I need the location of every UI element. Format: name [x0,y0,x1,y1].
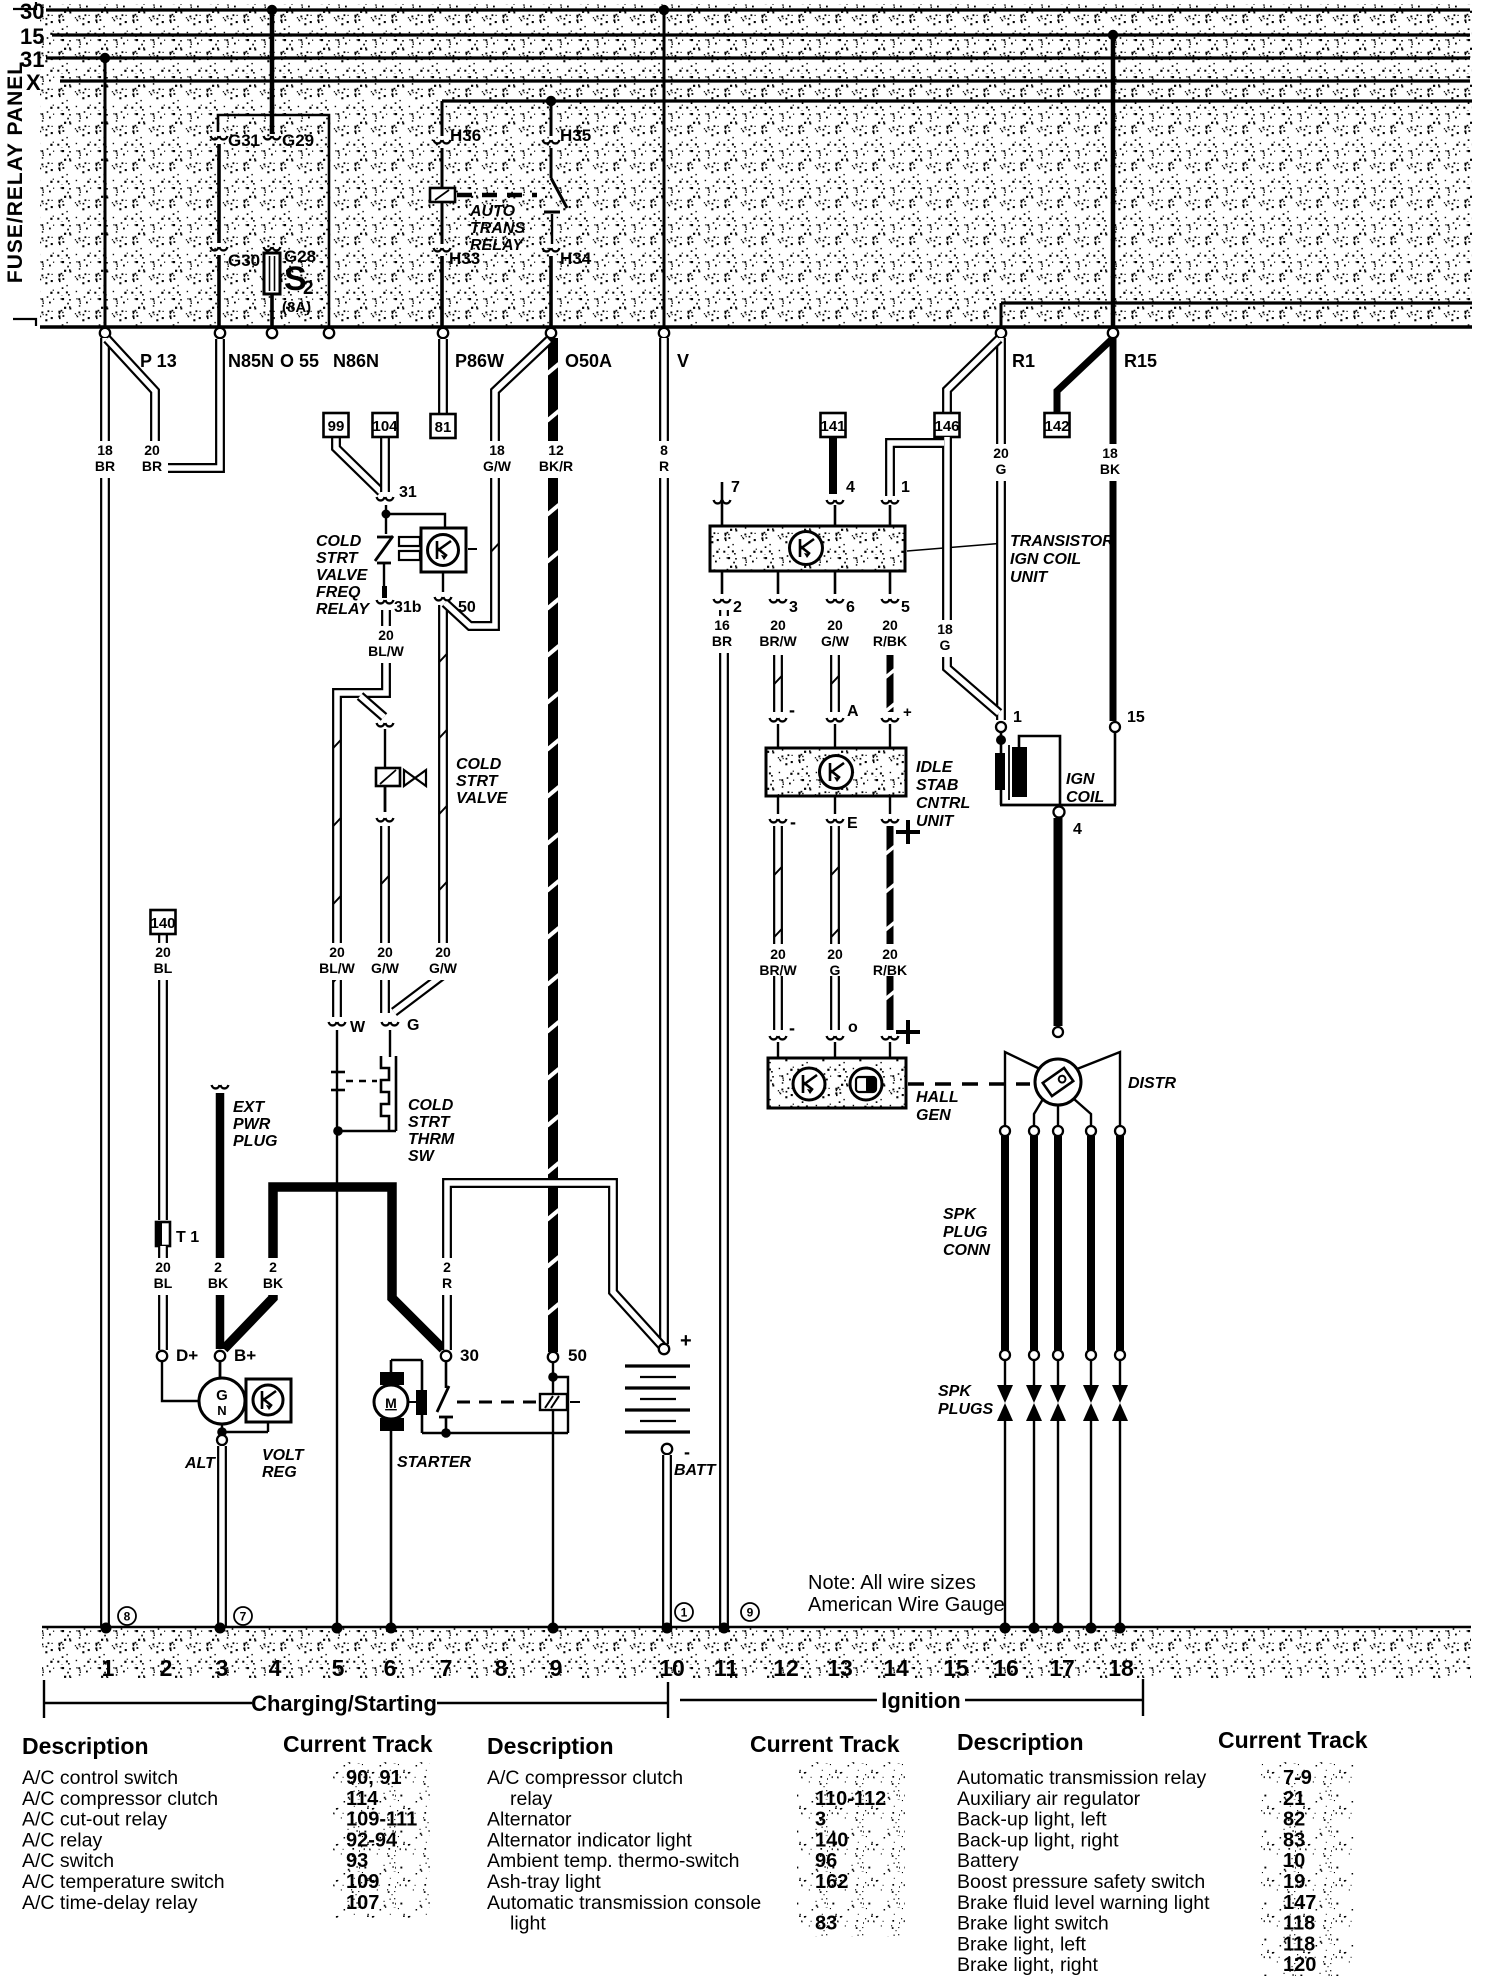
svg-text:BK: BK [263,1275,283,1291]
svg-text:A/C switch: A/C switch [22,1850,114,1872]
svg-text:A/C cut-out relay: A/C cut-out relay [22,1809,167,1831]
svg-text:31: 31 [20,47,44,72]
svg-text:Description: Description [487,1733,614,1759]
svg-text:COLD: COLD [408,1097,454,1114]
svg-text:GEN: GEN [916,1107,951,1124]
svg-text:+: + [680,1330,692,1352]
svg-text:BATT: BATT [674,1462,717,1479]
svg-text:20: 20 [144,442,160,458]
svg-text:2: 2 [733,599,742,616]
svg-text:7: 7 [731,479,740,496]
svg-text:114: 114 [346,1788,379,1810]
svg-text:99: 99 [328,418,345,435]
svg-text:109-111: 109-111 [346,1809,417,1831]
svg-text:Ignition: Ignition [881,1688,960,1713]
svg-text:R1: R1 [1012,351,1035,371]
svg-text:7: 7 [440,1655,453,1681]
svg-text:A/C time-delay relay: A/C time-delay relay [22,1892,198,1914]
svg-text:5: 5 [332,1655,345,1681]
svg-text:relay: relay [510,1788,553,1810]
svg-text:15: 15 [943,1655,969,1681]
svg-text:VALVE: VALVE [456,790,509,807]
svg-text:Ambient temp. thermo-switch: Ambient temp. thermo-switch [487,1850,740,1872]
svg-text:20: 20 [882,946,898,962]
svg-text:light: light [510,1913,546,1935]
svg-text:X: X [26,70,41,95]
svg-text:STRT: STRT [316,550,359,567]
svg-text:1: 1 [681,1606,688,1620]
svg-text:G31: G31 [228,131,260,150]
svg-text:162: 162 [815,1871,848,1893]
svg-text:STRT: STRT [408,1114,451,1131]
svg-text:STRT: STRT [456,773,499,790]
svg-text:3: 3 [789,599,798,616]
svg-text:PWR: PWR [233,1116,271,1133]
svg-text:N86N: N86N [333,351,379,371]
svg-text:COIL: COIL [1066,789,1104,806]
svg-text:A/C compressor clutch: A/C compressor clutch [487,1767,683,1789]
svg-text:30: 30 [20,0,44,24]
svg-text:6: 6 [846,599,855,616]
svg-text:93: 93 [346,1850,368,1872]
svg-text:BL/W: BL/W [319,960,356,976]
svg-text:G: G [830,962,841,978]
svg-text:13: 13 [827,1655,853,1681]
svg-text:P 13: P 13 [140,351,177,371]
svg-text:V: V [677,351,689,371]
svg-text:G: G [216,1387,228,1404]
svg-text:G/W: G/W [429,960,458,976]
svg-text:Alternator indicator light: Alternator indicator light [487,1829,692,1851]
svg-text:COLD: COLD [456,756,502,773]
svg-text:Description: Description [957,1729,1084,1755]
svg-text:Note: All wire sizes: Note: All wire sizes [808,1572,976,1594]
svg-text:4: 4 [846,479,855,496]
svg-text:18: 18 [937,621,953,637]
svg-text:G/W: G/W [371,960,400,976]
svg-text:PLUG: PLUG [233,1133,277,1150]
svg-text:A/C relay: A/C relay [22,1829,102,1851]
svg-text:6: 6 [384,1655,397,1681]
svg-text:G29: G29 [282,131,314,150]
svg-text:CONN: CONN [943,1242,991,1259]
svg-text:1: 1 [1013,709,1022,726]
svg-text:FUSE/RELAY PANEL: FUSE/RELAY PANEL [4,61,27,283]
svg-text:16: 16 [993,1655,1019,1681]
svg-text:18: 18 [1108,1655,1134,1681]
svg-text:R15: R15 [1124,351,1157,371]
svg-text:G30: G30 [228,251,260,270]
svg-text:109: 109 [346,1871,379,1893]
svg-text:FREQ: FREQ [316,584,361,601]
svg-text:SPK: SPK [943,1206,977,1223]
svg-text:A/C control switch: A/C control switch [22,1767,178,1789]
svg-text:146: 146 [934,418,959,435]
svg-text:R: R [659,458,669,474]
svg-text:American Wire Gauge: American Wire Gauge [808,1594,1005,1616]
svg-text:12: 12 [773,1655,799,1681]
svg-text:Brake light, right: Brake light, right [957,1954,1098,1976]
svg-text:A: A [847,703,859,720]
svg-text:(8A): (8A) [282,299,311,316]
svg-text:T 1: T 1 [176,1229,199,1246]
svg-text:G: G [407,1017,419,1034]
svg-text:A/C compressor clutch: A/C compressor clutch [22,1788,218,1810]
svg-text:7: 7 [240,1610,247,1624]
svg-text:W: W [350,1019,366,1036]
svg-text:SPK: SPK [938,1383,972,1400]
svg-text:Current Track: Current Track [1218,1727,1368,1753]
svg-text:140: 140 [150,915,175,932]
svg-text:20: 20 [155,944,171,960]
svg-text:8: 8 [495,1655,508,1681]
svg-text:CNTRL: CNTRL [916,795,970,812]
svg-text:G/W: G/W [483,458,512,474]
svg-text:BR: BR [142,458,162,474]
svg-text:140: 140 [815,1829,848,1851]
svg-text:BK/R: BK/R [539,458,573,474]
svg-text:16: 16 [714,617,730,633]
svg-text:N: N [217,1403,226,1418]
svg-text:20: 20 [827,946,843,962]
svg-text:o: o [848,1019,858,1036]
svg-text:110-112: 110-112 [815,1788,886,1810]
svg-text:142: 142 [1044,418,1069,435]
svg-text:8: 8 [124,1610,131,1624]
svg-text:82: 82 [1283,1809,1305,1831]
svg-text:BR/W: BR/W [759,962,797,978]
svg-text:83: 83 [1283,1829,1305,1851]
svg-text:20: 20 [993,445,1009,461]
svg-text:Brake light switch: Brake light switch [957,1913,1109,1935]
svg-text:PLUG: PLUG [943,1224,987,1241]
svg-text:14: 14 [883,1655,909,1681]
svg-text:Brake light, left: Brake light, left [957,1933,1087,1955]
svg-text:9: 9 [747,1606,754,1620]
svg-text:-: - [789,1018,795,1038]
svg-text:20: 20 [882,617,898,633]
svg-text:18: 18 [1102,445,1118,461]
svg-text:11: 11 [714,1655,739,1681]
svg-text:RELAY: RELAY [316,601,370,618]
svg-text:Back-up light, left: Back-up light, left [957,1809,1107,1831]
svg-text:UNIT: UNIT [916,813,955,830]
svg-text:81: 81 [435,419,452,436]
svg-text:8: 8 [660,442,668,458]
svg-text:G: G [996,461,1007,477]
svg-text:H36: H36 [450,126,481,145]
svg-text:20: 20 [377,944,393,960]
svg-text:Charging/Starting: Charging/Starting [251,1691,437,1716]
svg-text:G/W: G/W [821,633,850,649]
svg-text:IDLE: IDLE [916,759,954,776]
svg-text:STAB: STAB [916,777,958,794]
svg-text:Description: Description [22,1733,149,1759]
svg-text:90, 91: 90, 91 [346,1767,402,1789]
svg-text:15: 15 [1127,709,1145,726]
svg-text:Alternator: Alternator [487,1809,572,1831]
svg-text:G: G [940,637,951,653]
svg-text:RELAY: RELAY [470,237,524,254]
svg-text:17: 17 [1049,1655,1075,1681]
svg-text:Back-up light, right: Back-up light, right [957,1829,1119,1851]
svg-text:118: 118 [1283,1933,1315,1955]
svg-text:18: 18 [489,442,505,458]
svg-text:20: 20 [827,617,843,633]
svg-text:BL/W: BL/W [368,643,405,659]
svg-text:Automatic transmission console: Automatic transmission console [487,1892,761,1914]
svg-text:-: - [790,812,796,832]
svg-text:H35: H35 [560,126,591,145]
svg-text:R/BK: R/BK [873,962,907,978]
svg-text:BK: BK [208,1275,228,1291]
svg-text:1: 1 [901,479,910,496]
svg-text:THRM: THRM [408,1131,455,1148]
svg-text:3: 3 [216,1655,229,1681]
svg-text:E: E [847,815,858,832]
svg-text:IGN: IGN [1066,771,1095,788]
svg-text:2: 2 [214,1259,222,1275]
svg-text:UNIT: UNIT [1010,569,1049,586]
svg-text:STARTER: STARTER [397,1454,472,1471]
svg-text:21: 21 [1283,1788,1305,1810]
svg-text:HALL: HALL [916,1089,959,1106]
svg-text:2: 2 [303,278,314,299]
svg-text:Battery: Battery [957,1850,1019,1872]
svg-text:141: 141 [820,418,845,435]
svg-text:2: 2 [443,1259,451,1275]
svg-text:20: 20 [378,627,394,643]
svg-text:50: 50 [568,1346,587,1365]
svg-text:BR/W: BR/W [759,633,797,649]
svg-text:SW: SW [408,1148,436,1165]
svg-text:10: 10 [1283,1850,1305,1872]
svg-text:O 55: O 55 [280,351,319,371]
svg-text:18: 18 [97,442,113,458]
svg-text:7-9: 7-9 [1283,1767,1312,1789]
svg-text:+: + [903,704,912,721]
svg-text:118: 118 [1283,1913,1315,1935]
svg-text:BR: BR [712,633,732,649]
svg-text:H34: H34 [560,249,592,268]
svg-text:Brake fluid level warning ligh: Brake fluid level warning light [957,1892,1210,1914]
svg-text:1: 1 [102,1655,115,1681]
svg-text:-: - [789,700,795,720]
svg-text:REG: REG [262,1464,297,1481]
svg-text:147: 147 [1283,1892,1316,1914]
svg-text:BL: BL [154,1275,173,1291]
svg-text:VOLT: VOLT [262,1447,305,1464]
svg-text:IGN COIL: IGN COIL [1010,551,1081,568]
svg-text:BR: BR [95,458,115,474]
svg-text:104: 104 [372,418,398,435]
svg-text:Current Track: Current Track [750,1731,900,1757]
svg-text:12: 12 [548,442,564,458]
svg-text:Automatic transmission relay: Automatic transmission relay [957,1767,1207,1789]
svg-text:2: 2 [160,1655,173,1681]
svg-text:COLD: COLD [316,533,362,550]
svg-text:20: 20 [435,944,451,960]
svg-text:Ash-tray light: Ash-tray light [487,1871,601,1893]
svg-text:9: 9 [550,1655,563,1681]
svg-text:VALVE: VALVE [316,567,369,584]
svg-text:D+: D+ [176,1346,198,1365]
svg-text:EXT: EXT [233,1099,265,1116]
svg-text:TRANSISTOR: TRANSISTOR [1010,533,1114,550]
svg-text:4: 4 [1073,821,1082,838]
svg-text:31b: 31b [394,599,422,616]
svg-text:AUTO: AUTO [469,203,516,220]
svg-text:BK: BK [1100,461,1120,477]
svg-text:3: 3 [815,1809,826,1831]
svg-text:2: 2 [269,1259,277,1275]
svg-text:N85N: N85N [228,351,274,371]
svg-text:P86W: P86W [455,351,504,371]
svg-text:30: 30 [460,1346,479,1365]
svg-text:BL: BL [154,960,173,976]
svg-text:-: - [684,1442,690,1462]
svg-text:92-94: 92-94 [346,1829,398,1851]
svg-text:Current Track: Current Track [283,1731,433,1757]
svg-text:107: 107 [346,1892,379,1914]
svg-text:10: 10 [659,1655,685,1681]
svg-text:5: 5 [901,599,910,616]
svg-text:A/C temperature switch: A/C temperature switch [22,1871,225,1893]
svg-text:B+: B+ [234,1346,256,1365]
svg-text:20: 20 [770,946,786,962]
svg-text:DISTR: DISTR [1128,1075,1176,1092]
svg-text:Boost pressure safety switch: Boost pressure safety switch [957,1871,1205,1893]
svg-text:19: 19 [1283,1871,1305,1893]
svg-text:R: R [442,1275,452,1291]
svg-text:31: 31 [399,484,417,501]
svg-text:20: 20 [770,617,786,633]
svg-text:20: 20 [329,944,345,960]
svg-text:Auxiliary air regulator: Auxiliary air regulator [957,1788,1141,1810]
svg-text:83: 83 [815,1913,837,1935]
svg-text:O50A: O50A [565,351,612,371]
svg-text:4: 4 [269,1655,282,1681]
svg-text:96: 96 [815,1850,837,1872]
svg-text:20: 20 [155,1259,171,1275]
svg-text:TRANS: TRANS [470,220,525,237]
svg-text:15: 15 [20,24,44,49]
svg-text:PLUGS: PLUGS [938,1401,993,1418]
svg-text:R/BK: R/BK [873,633,907,649]
svg-text:ALT: ALT [184,1455,216,1472]
svg-text:M: M [385,1395,397,1411]
svg-text:120: 120 [1283,1954,1316,1976]
